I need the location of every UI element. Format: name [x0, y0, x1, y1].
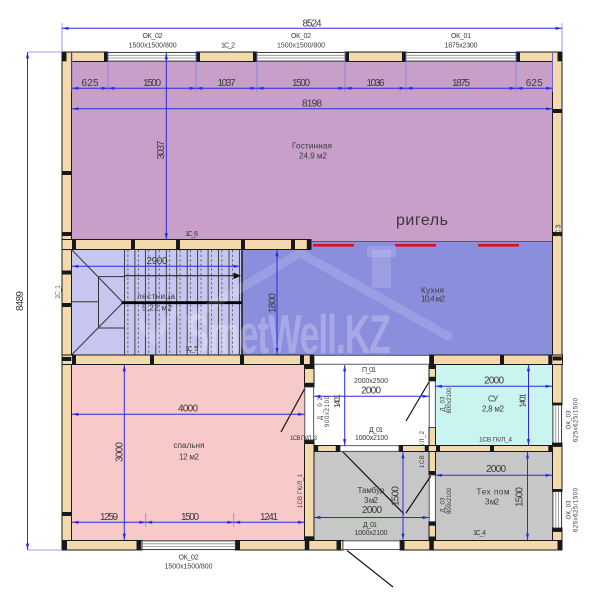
svg-text:1500х1500/800: 1500х1500/800 — [129, 43, 177, 50]
svg-text:1000х2100: 1000х2100 — [355, 530, 388, 537]
svg-text:1500: 1500 — [391, 486, 402, 506]
svg-text:10,4 м2: 10,4 м2 — [421, 295, 446, 304]
svg-text:Тамбур: Тамбур — [358, 486, 386, 495]
svg-text:П_01: П_01 — [362, 367, 376, 374]
svg-text:1500х1500/800: 1500х1500/800 — [165, 564, 213, 571]
svg-text:2000: 2000 — [361, 386, 381, 397]
svg-text:1401: 1401 — [519, 393, 528, 408]
svg-text:1С_6: 1С_6 — [185, 231, 198, 238]
svg-text:Тех пом: Тех пом — [477, 488, 510, 497]
svg-text:3037: 3037 — [156, 140, 167, 159]
svg-text:1241: 1241 — [260, 512, 278, 523]
svg-text:Д_01: Д_01 — [369, 427, 383, 434]
svg-text:900х2100: 900х2100 — [325, 395, 331, 427]
svg-text:1800: 1800 — [268, 293, 279, 313]
svg-text:1С_1: 1С_1 — [55, 285, 62, 299]
svg-text:2900: 2900 — [147, 256, 168, 267]
svg-text:2000: 2000 — [362, 505, 382, 516]
svg-text:1С_2: 1С_2 — [221, 43, 235, 50]
svg-text:1037: 1037 — [218, 78, 236, 89]
svg-text:спальня: спальня — [174, 441, 205, 450]
svg-text:1С_5: 1С_5 — [185, 346, 198, 353]
svg-text:24,9 м2: 24,9 м2 — [299, 152, 328, 161]
svg-text:1СВ ГК/Л_4: 1СВ ГК/Л_4 — [479, 437, 512, 444]
svg-text:5,22 м2: 5,22 м2 — [142, 304, 173, 313]
svg-text:3 м2: 3 м2 — [364, 496, 379, 505]
svg-text:1С_4: 1С_4 — [473, 530, 486, 537]
svg-text:ОК_02: ОК_02 — [179, 555, 199, 562]
svg-text:8524: 8524 — [303, 19, 322, 30]
svg-text:Д_03: Д_03 — [441, 497, 447, 513]
svg-text:1036: 1036 — [367, 78, 385, 89]
svg-text:625х625/1500: 625х625/1500 — [574, 487, 580, 532]
svg-text:800х2100: 800х2100 — [447, 487, 453, 514]
svg-text:1500: 1500 — [181, 512, 199, 523]
svg-text:8489: 8489 — [15, 291, 26, 311]
svg-text:625: 625 — [526, 78, 543, 89]
svg-text:ОК_02: ОК_02 — [143, 33, 163, 40]
svg-text:800х2100: 800х2100 — [447, 387, 453, 414]
svg-text:2000х2500: 2000х2500 — [354, 378, 388, 385]
svg-text:Д_03: Д_03 — [441, 396, 447, 412]
svg-text:3 м2: 3 м2 — [485, 498, 500, 507]
svg-text:СУ: СУ — [488, 395, 499, 404]
svg-text:1875х2300: 1875х2300 — [445, 43, 478, 50]
svg-text:1500: 1500 — [292, 78, 310, 89]
svg-text:4000: 4000 — [178, 404, 198, 415]
svg-text:Д_01: Д_01 — [363, 522, 377, 529]
svg-text:1500: 1500 — [515, 487, 526, 507]
svg-text:2,8 м2: 2,8 м2 — [482, 405, 505, 414]
svg-text:1259: 1259 — [100, 512, 118, 523]
svg-text:ОК_03: ОК_03 — [567, 500, 573, 520]
svg-text:625х625/1500: 625х625/1500 — [574, 397, 580, 442]
svg-text:1875: 1875 — [452, 78, 470, 89]
svg-text:1000х2100: 1000х2100 — [355, 435, 388, 442]
svg-text:1СВ ГК/Л_1: 1СВ ГК/Л_1 — [298, 473, 304, 508]
svg-text:12 м2: 12 м2 — [179, 453, 200, 462]
svg-text:ОК_02: ОК_02 — [291, 33, 311, 40]
svg-text:лестница: лестница — [137, 292, 176, 301]
svg-text:625: 625 — [82, 78, 99, 89]
svg-text:ригель: ригель — [396, 212, 448, 229]
svg-text:1500: 1500 — [143, 78, 161, 89]
svg-text:Гостинная: Гостинная — [292, 142, 332, 151]
svg-text:ОК_01: ОК_01 — [451, 33, 471, 40]
svg-text:8198: 8198 — [302, 99, 322, 110]
svg-text:1С_3: 1С_3 — [556, 224, 563, 237]
svg-text:2000: 2000 — [484, 376, 504, 387]
svg-text:ОК_03: ОК_03 — [567, 410, 573, 430]
svg-text:1500х1500/800: 1500х1500/800 — [277, 43, 325, 50]
svg-text:1401: 1401 — [333, 393, 342, 408]
svg-text:2000: 2000 — [486, 464, 506, 475]
svg-text:1СВ ГК/Л_3: 1СВ ГК/Л_3 — [290, 436, 318, 442]
svg-text:3000: 3000 — [114, 442, 125, 462]
